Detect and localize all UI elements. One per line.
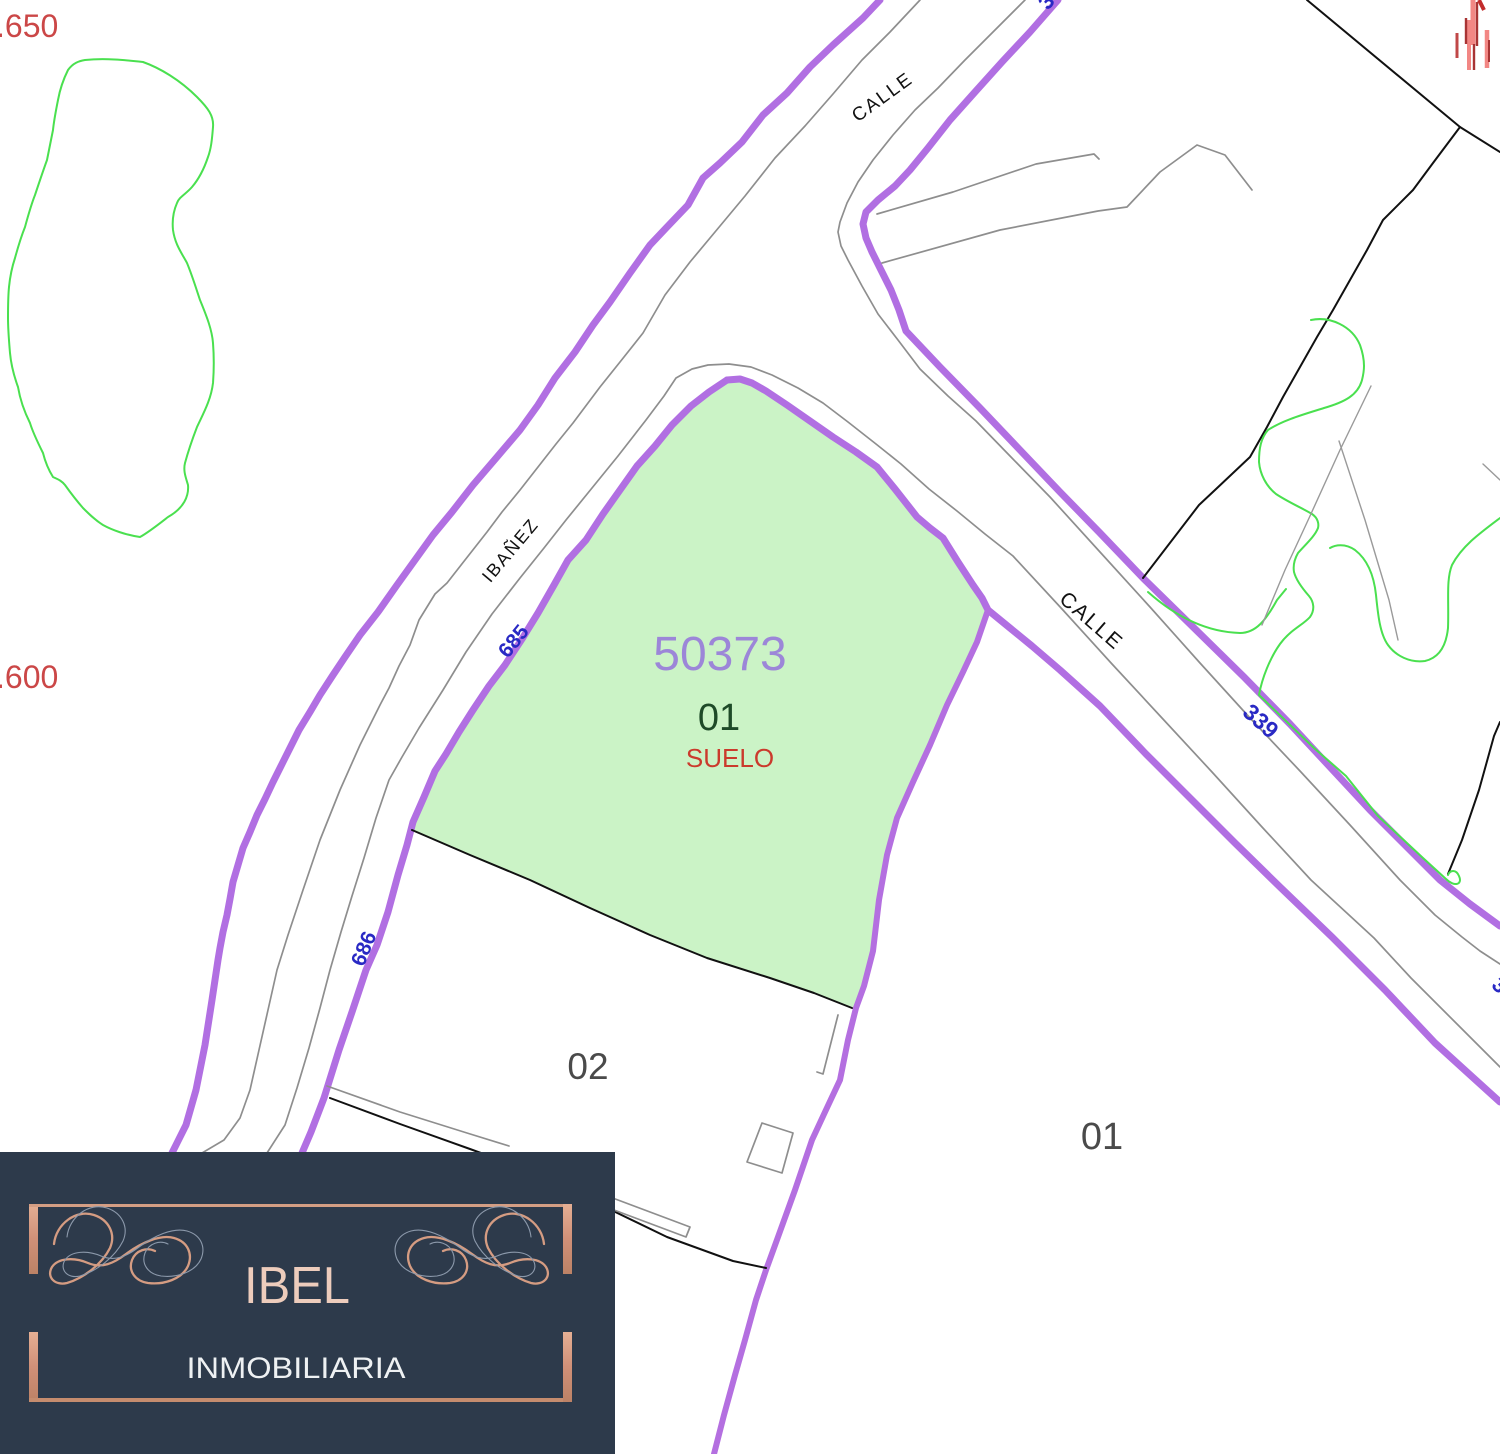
svg-text:01: 01: [1081, 1116, 1123, 1158]
svg-text:.650: .650: [0, 8, 58, 44]
svg-text:01: 01: [698, 697, 740, 739]
svg-text:02: 02: [567, 1046, 608, 1087]
svg-text:50373: 50373: [653, 628, 786, 681]
svg-text:.600: .600: [0, 659, 58, 695]
svg-text:IBEL: IBEL: [244, 1257, 350, 1315]
svg-text:INMOBILIARIA: INMOBILIARIA: [187, 1352, 406, 1385]
svg-text:SUELO: SUELO: [686, 743, 774, 773]
